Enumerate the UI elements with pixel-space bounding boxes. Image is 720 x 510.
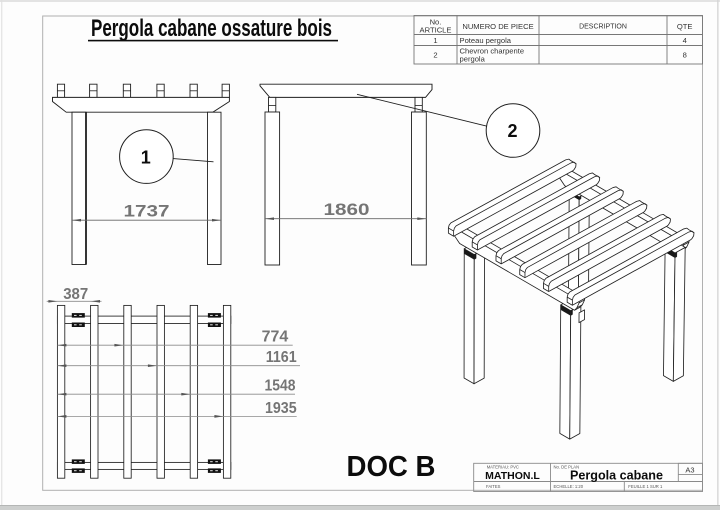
svg-text:ARTICLE: ARTICLE: [420, 26, 452, 35]
svg-text:Pergola cabane: Pergola cabane: [570, 468, 663, 483]
svg-text:A3: A3: [685, 466, 694, 475]
svg-text:pergola: pergola: [460, 55, 486, 64]
svg-text:2: 2: [433, 51, 437, 60]
svg-text:8: 8: [683, 51, 687, 60]
svg-text:2: 2: [507, 121, 517, 141]
svg-text:ECHELLE: 1:20: ECHELLE: 1:20: [554, 484, 584, 489]
svg-text:1: 1: [433, 36, 437, 45]
svg-text:QTE: QTE: [677, 22, 693, 31]
svg-text:1161: 1161: [266, 349, 297, 366]
svg-text:FAITES: FAITES: [486, 484, 501, 489]
svg-text:387: 387: [63, 286, 88, 303]
svg-text:MATERIAU: PVC: MATERIAU: PVC: [487, 464, 519, 469]
svg-text:NUMERO DE PIECE: NUMERO DE PIECE: [462, 22, 533, 31]
svg-text:DESCRIPTION: DESCRIPTION: [579, 24, 627, 31]
svg-text:FEUILLE 1 SUR 1: FEUILLE 1 SUR 1: [628, 484, 663, 489]
svg-text:1860: 1860: [324, 201, 370, 219]
svg-text:DOC B: DOC B: [347, 451, 436, 483]
svg-text:MATHON.L: MATHON.L: [485, 470, 540, 482]
svg-text:1935: 1935: [265, 400, 297, 417]
svg-text:1737: 1737: [124, 203, 170, 221]
svg-text:Pergola cabane ossature bois: Pergola cabane ossature bois: [91, 15, 332, 42]
svg-text:Poteau pergola: Poteau pergola: [460, 36, 512, 45]
svg-text:1: 1: [141, 147, 151, 167]
svg-text:1548: 1548: [265, 378, 296, 395]
svg-text:4: 4: [683, 36, 687, 45]
svg-text:774: 774: [262, 329, 289, 346]
